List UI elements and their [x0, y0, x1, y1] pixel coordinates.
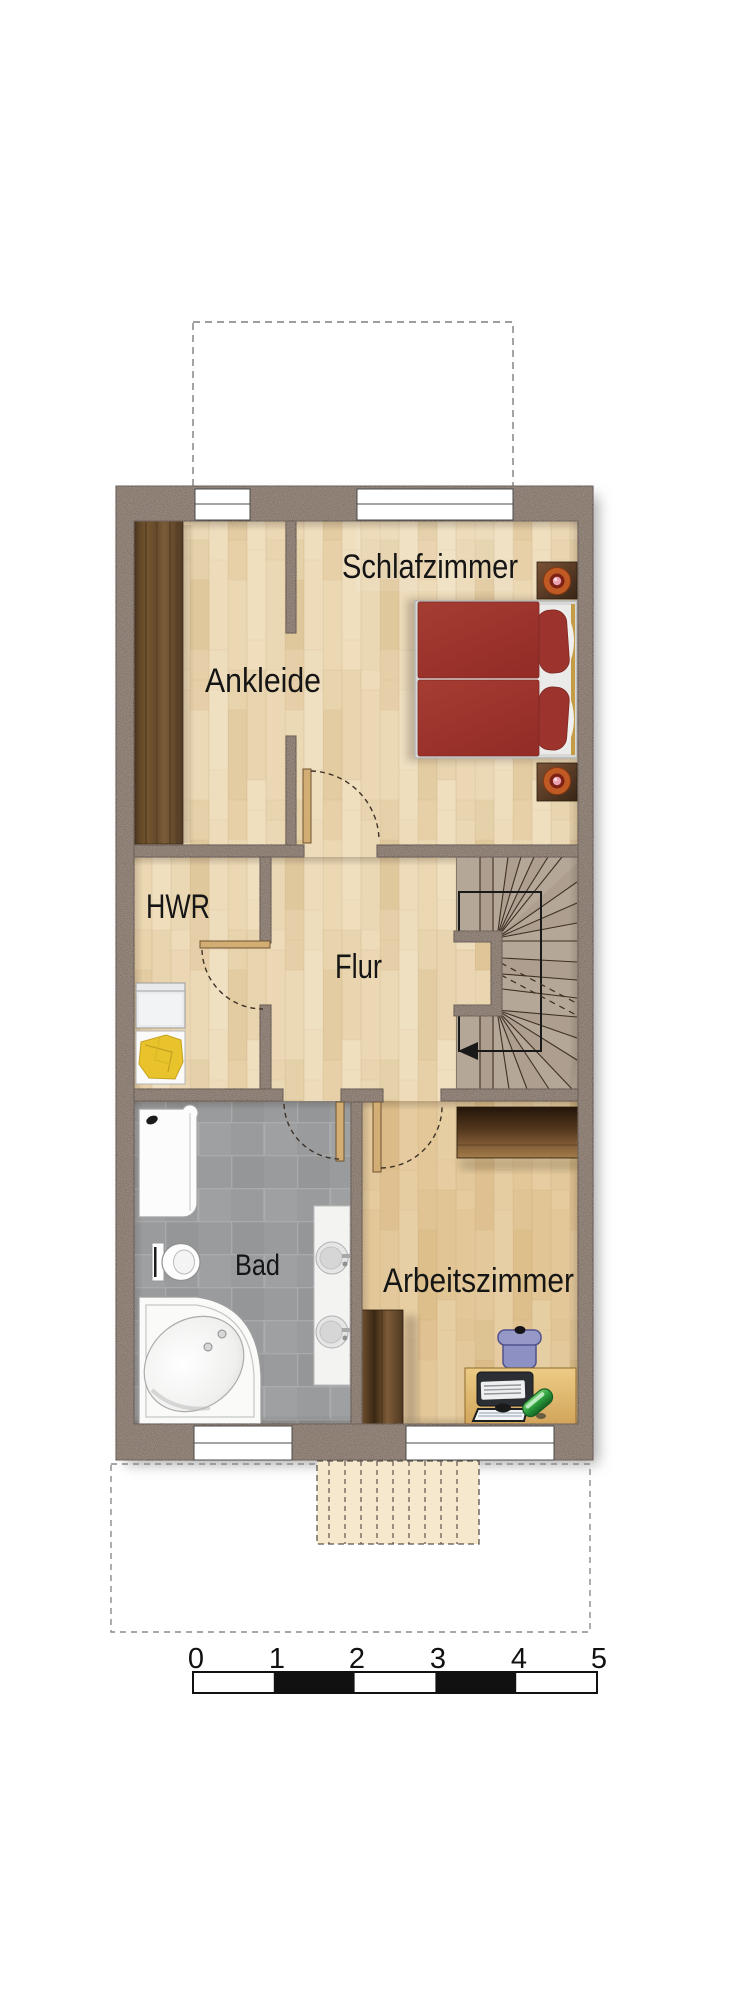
svg-text:4: 4	[511, 1643, 527, 1675]
svg-text:2: 2	[349, 1643, 365, 1675]
svg-text:0: 0	[188, 1643, 204, 1675]
svg-text:Bad: Bad	[235, 1249, 280, 1282]
svg-text:1: 1	[269, 1643, 285, 1675]
svg-text:3: 3	[430, 1643, 446, 1675]
svg-text:HWR: HWR	[146, 888, 210, 926]
svg-text:Flur: Flur	[335, 948, 382, 986]
svg-text:Arbeitszimmer: Arbeitszimmer	[383, 1262, 574, 1300]
svg-text:5: 5	[591, 1643, 607, 1675]
svg-text:Ankleide: Ankleide	[205, 662, 321, 700]
svg-text:Schlafzimmer: Schlafzimmer	[342, 548, 518, 586]
